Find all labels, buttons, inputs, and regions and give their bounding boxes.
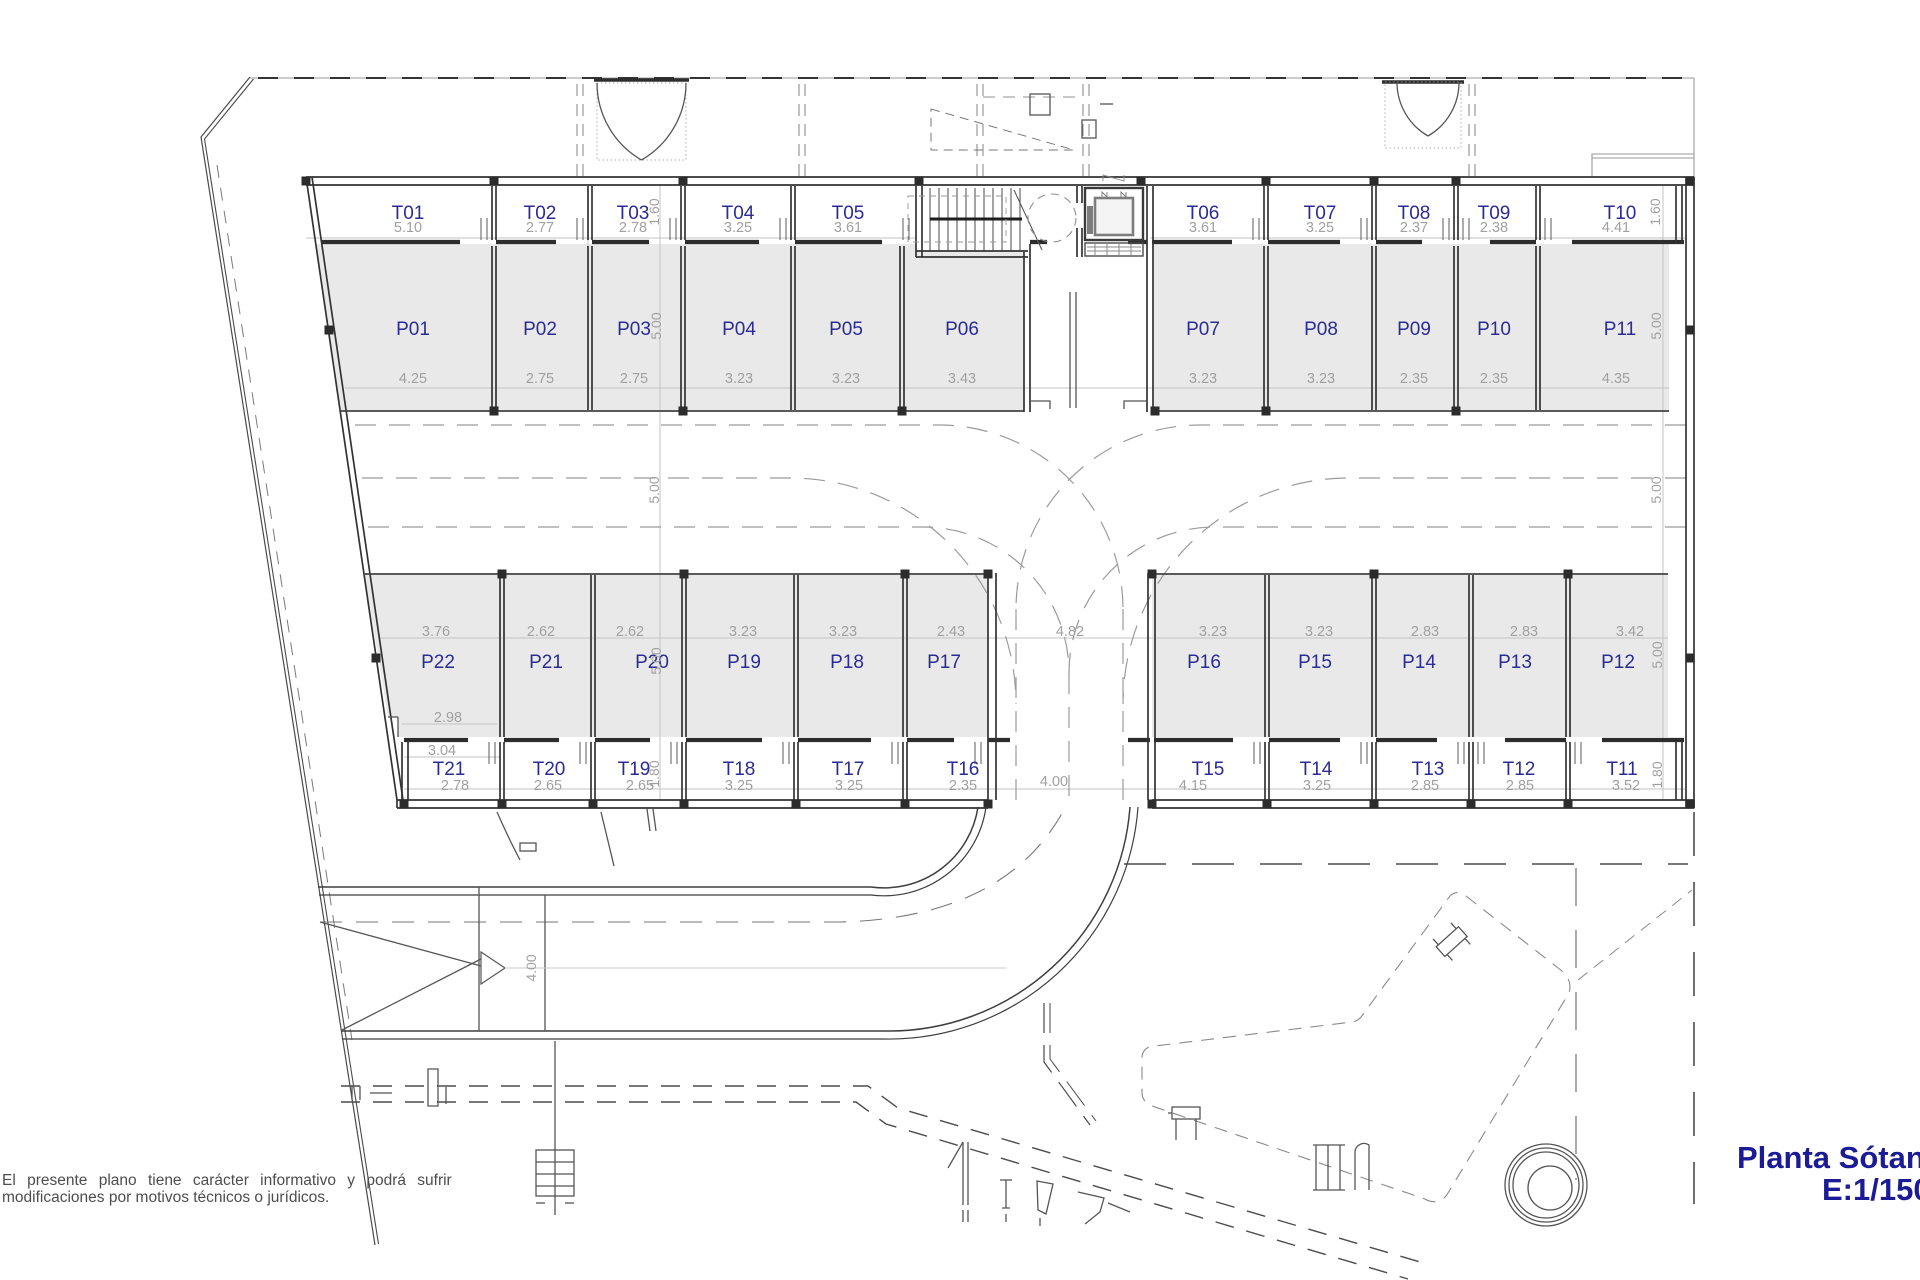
svg-text:T17: T17: [832, 759, 865, 780]
svg-text:P06: P06: [945, 319, 979, 340]
svg-text:P17: P17: [927, 652, 961, 673]
svg-text:3.23: 3.23: [1199, 624, 1227, 640]
svg-text:3.25: 3.25: [1303, 778, 1331, 794]
svg-text:P22: P22: [421, 652, 455, 673]
svg-text:4.00: 4.00: [523, 954, 539, 981]
svg-text:4.82: 4.82: [1056, 624, 1084, 640]
svg-text:T20: T20: [533, 759, 566, 780]
svg-text:T16: T16: [947, 759, 980, 780]
svg-text:2.83: 2.83: [1510, 624, 1538, 640]
svg-text:2.35: 2.35: [1400, 371, 1428, 387]
svg-text:3.52: 3.52: [1612, 778, 1640, 794]
svg-text:3.23: 3.23: [829, 624, 857, 640]
svg-text:P02: P02: [523, 319, 557, 340]
svg-text:3.23: 3.23: [1307, 371, 1335, 387]
svg-text:4.15: 4.15: [1179, 778, 1207, 794]
svg-text:1.60: 1.60: [1647, 198, 1663, 225]
svg-text:2.75: 2.75: [526, 371, 554, 387]
svg-text:Planta Sótano: Planta Sótano: [1737, 1140, 1920, 1175]
svg-text:P14: P14: [1402, 652, 1436, 673]
svg-text:2.85: 2.85: [1411, 778, 1439, 794]
svg-text:T15: T15: [1192, 759, 1225, 780]
svg-text:4.41: 4.41: [1602, 220, 1630, 236]
svg-text:P11: P11: [1604, 319, 1636, 340]
svg-text:3.42: 3.42: [1616, 624, 1644, 640]
svg-text:3.23: 3.23: [725, 371, 753, 387]
svg-text:P07: P07: [1186, 319, 1220, 340]
svg-text:P03: P03: [617, 319, 651, 340]
svg-text:E:1/150: E:1/150: [1822, 1172, 1920, 1207]
svg-text:P04: P04: [722, 319, 756, 340]
svg-text:2.83: 2.83: [1411, 624, 1439, 640]
svg-text:El presente plano tiene caráct: El presente plano tiene carácter informa…: [2, 1172, 452, 1189]
svg-text:3.23: 3.23: [1305, 624, 1333, 640]
svg-text:2.43: 2.43: [937, 624, 965, 640]
svg-text:P16: P16: [1187, 652, 1221, 673]
svg-text:3.76: 3.76: [422, 624, 450, 640]
svg-text:T12: T12: [1503, 759, 1536, 780]
svg-text:P15: P15: [1298, 652, 1332, 673]
svg-text:5.00: 5.00: [648, 647, 664, 674]
svg-text:3.43: 3.43: [948, 371, 976, 387]
svg-text:2.35: 2.35: [1480, 371, 1508, 387]
svg-text:2.77: 2.77: [526, 220, 554, 236]
svg-text:2.35: 2.35: [949, 778, 977, 794]
svg-text:T21: T21: [433, 759, 466, 780]
svg-text:P19: P19: [727, 652, 761, 673]
svg-text:2.37: 2.37: [1400, 220, 1428, 236]
svg-text:2.75: 2.75: [620, 371, 648, 387]
svg-text:3.61: 3.61: [834, 220, 862, 236]
svg-text:1.60: 1.60: [646, 198, 662, 225]
svg-text:P18: P18: [830, 652, 864, 673]
svg-text:3.23: 3.23: [832, 371, 860, 387]
svg-text:3.61: 3.61: [1189, 220, 1217, 236]
svg-text:P21: P21: [529, 652, 563, 673]
svg-text:3.25: 3.25: [725, 778, 753, 794]
svg-text:2.78: 2.78: [441, 778, 469, 794]
svg-text:T18: T18: [723, 759, 756, 780]
svg-text:5.00: 5.00: [1648, 312, 1664, 339]
svg-text:3.23: 3.23: [1189, 371, 1217, 387]
svg-text:P09: P09: [1397, 319, 1431, 340]
svg-text:5.10: 5.10: [394, 220, 422, 236]
svg-text:5.00: 5.00: [646, 476, 662, 503]
svg-text:4.00: 4.00: [1040, 774, 1068, 790]
svg-text:2.78: 2.78: [619, 220, 647, 236]
svg-text:T11: T11: [1606, 759, 1637, 780]
svg-text:modificaciones por motivos téc: modificaciones por motivos técnicos o ju…: [2, 1189, 329, 1206]
svg-text:1.80: 1.80: [646, 760, 662, 787]
svg-text:2.98: 2.98: [434, 710, 462, 726]
svg-text:5.00: 5.00: [648, 312, 664, 339]
svg-text:P13: P13: [1498, 652, 1532, 673]
svg-text:2.62: 2.62: [616, 624, 644, 640]
svg-text:P05: P05: [829, 319, 863, 340]
svg-text:3.04: 3.04: [428, 743, 456, 759]
svg-text:T13: T13: [1412, 759, 1445, 780]
svg-text:3.25: 3.25: [1306, 220, 1334, 236]
svg-text:3.23: 3.23: [729, 624, 757, 640]
svg-text:4.35: 4.35: [1602, 371, 1630, 387]
svg-text:1.80: 1.80: [1649, 761, 1665, 788]
svg-text:P12: P12: [1601, 652, 1635, 673]
svg-text:P01: P01: [396, 319, 430, 340]
svg-text:P08: P08: [1304, 319, 1338, 340]
svg-text:T14: T14: [1300, 759, 1333, 780]
svg-text:4.25: 4.25: [399, 371, 427, 387]
svg-text:P10: P10: [1477, 319, 1511, 340]
svg-text:2.85: 2.85: [1506, 778, 1534, 794]
svg-text:3.25: 3.25: [835, 778, 863, 794]
svg-text:3.25: 3.25: [724, 220, 752, 236]
svg-text:2.62: 2.62: [527, 624, 555, 640]
svg-text:5.00: 5.00: [1648, 476, 1664, 503]
svg-text:5.00: 5.00: [1649, 641, 1665, 668]
svg-text:2.65: 2.65: [534, 778, 562, 794]
svg-text:2.38: 2.38: [1480, 220, 1508, 236]
